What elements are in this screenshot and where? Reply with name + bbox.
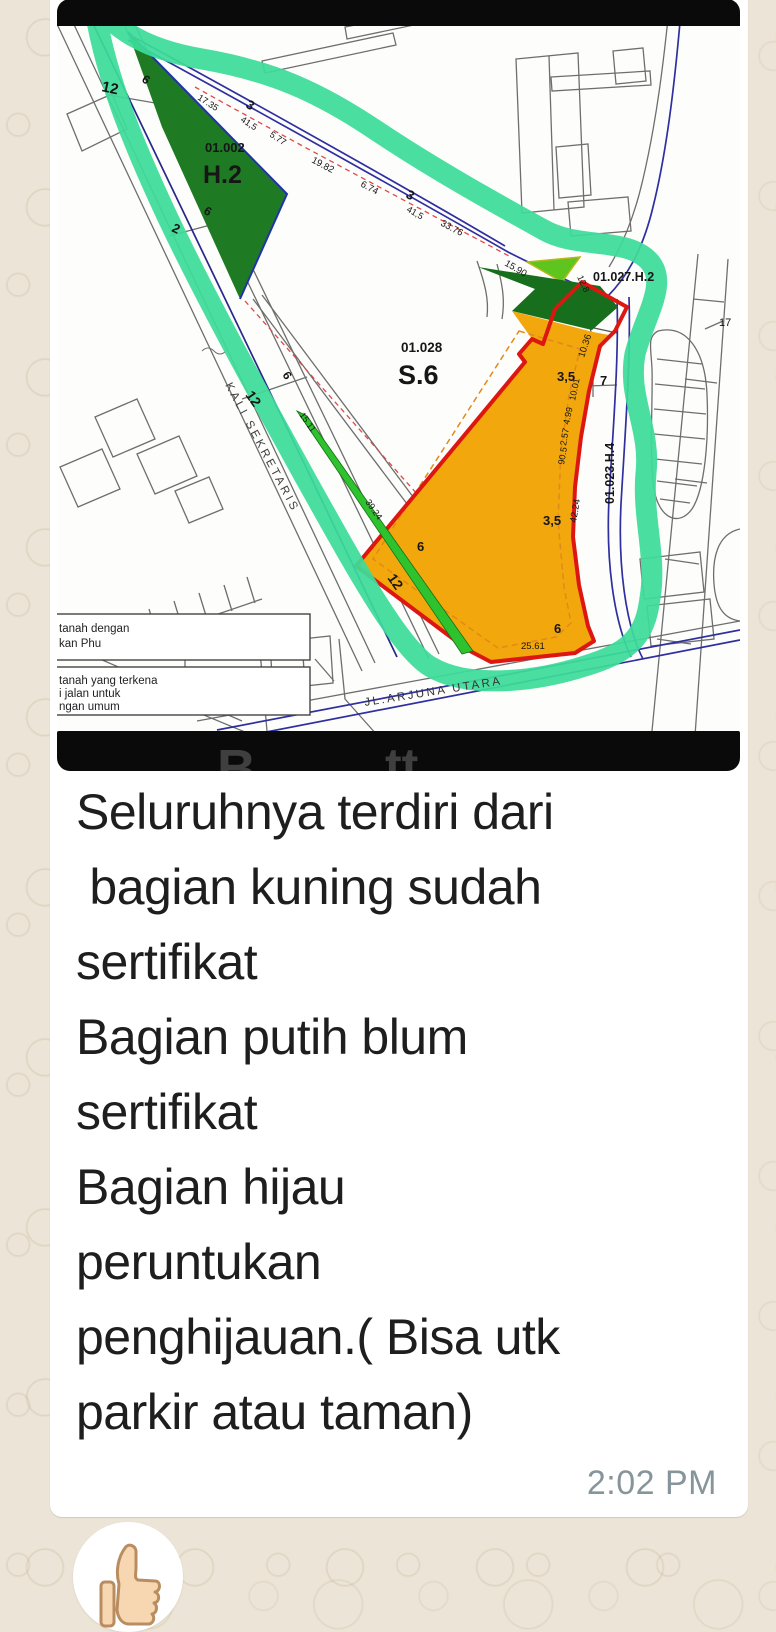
map-label: ngan umum	[59, 701, 120, 713]
thumbs-up-icon	[89, 1540, 167, 1632]
whatsapp-chat-screen: { "chat": { "message": { "caption": "Sel…	[0, 0, 776, 1574]
map-label: 01.023.H.4	[603, 443, 617, 504]
map-label: 3,5	[543, 513, 561, 528]
map-label: tanah dengan	[59, 623, 129, 635]
map-label: S.6	[398, 360, 439, 390]
message-text: Seluruhnya terdiri dari bagian kuning su…	[76, 775, 723, 1450]
map-label: 17	[719, 317, 731, 329]
map-label: B	[217, 739, 256, 771]
message-bubble[interactable]: 01.002H.212617.35341,55.772619.826.74341…	[50, 0, 748, 1517]
land-plot-map: 01.002H.212617.35341,55.772619.826.74341…	[57, 0, 740, 771]
map-label: 6	[554, 621, 561, 636]
message-timestamp: 2:02 PM	[57, 1464, 717, 1503]
image-top-bar	[57, 0, 740, 26]
map-label: H.2	[203, 161, 242, 189]
map-label: tanah yang terkena	[59, 675, 158, 687]
map-label: 25.61	[521, 641, 545, 652]
map-label: tt	[385, 738, 419, 771]
map-image-attachment[interactable]: 01.002H.212617.35341,55.772619.826.74341…	[57, 0, 740, 771]
map-label: 12	[100, 78, 120, 98]
map-label: 01.027.H.2	[593, 270, 654, 284]
map-label: 01.002	[205, 140, 245, 155]
map-label: i jalan untuk	[59, 688, 121, 700]
map-label: 01.028	[401, 340, 443, 355]
map-label: 7	[600, 373, 607, 388]
map-label: 6	[417, 539, 424, 554]
map-label: kan Phu	[59, 638, 101, 650]
thumbs-up-sticker[interactable]	[73, 1522, 183, 1632]
